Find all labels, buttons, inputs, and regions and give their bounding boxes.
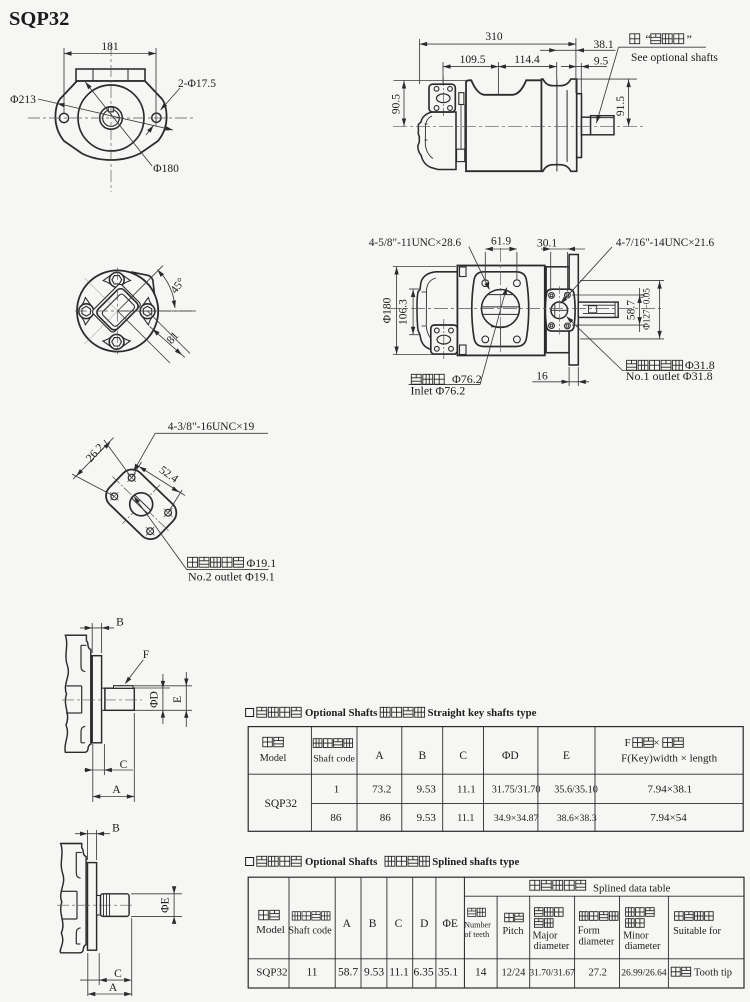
svg-text:310: 310	[485, 31, 503, 43]
svg-text:Inlet Φ76.2: Inlet Φ76.2	[411, 384, 466, 398]
svg-text:35.6/35.10: 35.6/35.10	[554, 784, 598, 795]
svg-text:86: 86	[330, 812, 342, 824]
svg-text:7.94×38.1: 7.94×38.1	[647, 783, 692, 795]
svg-text:7.94×54: 7.94×54	[650, 812, 687, 824]
svg-text:E: E	[172, 696, 184, 703]
svg-text:C: C	[114, 968, 122, 980]
svg-text:Major: Major	[533, 931, 559, 942]
svg-text:11: 11	[306, 967, 317, 979]
svg-text:91.5: 91.5	[615, 96, 627, 116]
svg-text:11.1: 11.1	[457, 813, 474, 824]
svg-text:14: 14	[475, 967, 487, 979]
svg-text:A: A	[343, 918, 352, 930]
svg-text:11.1: 11.1	[457, 783, 476, 795]
svg-text:9.53: 9.53	[417, 812, 437, 824]
svg-text:A: A	[109, 982, 118, 994]
svg-text:A: A	[112, 784, 121, 796]
svg-text:12/24: 12/24	[501, 968, 526, 979]
svg-text:Φ213: Φ213	[10, 94, 36, 106]
svg-text:Number: Number	[464, 921, 491, 930]
svg-text:2-Φ17.5: 2-Φ17.5	[178, 78, 216, 90]
svg-text:No.1 outlet Φ31.8: No.1 outlet Φ31.8	[626, 369, 713, 383]
svg-text:4-7/16"-14UNC×21.6: 4-7/16"-14UNC×21.6	[616, 237, 715, 249]
svg-text:D: D	[420, 918, 428, 930]
svg-text:ΦD: ΦD	[149, 691, 161, 708]
svg-text:B: B	[369, 918, 377, 930]
svg-text:diameter: diameter	[534, 941, 570, 952]
svg-text:Φ180: Φ180	[153, 163, 179, 175]
svg-text:16: 16	[536, 371, 548, 383]
svg-text:61.9: 61.9	[491, 236, 511, 248]
svg-text:Φ180: Φ180	[381, 297, 393, 323]
svg-text:“: “	[646, 32, 651, 46]
svg-text:diameter: diameter	[625, 941, 661, 952]
svg-text:181: 181	[101, 41, 119, 53]
svg-text:C: C	[459, 750, 467, 762]
svg-text:C: C	[395, 918, 403, 930]
svg-text:26.99/26.64: 26.99/26.64	[621, 969, 667, 979]
svg-text:Φ19.1: Φ19.1	[247, 556, 277, 570]
svg-text:4-3/8"-16UNC×19: 4-3/8"-16UNC×19	[168, 421, 255, 433]
svg-text:F: F	[143, 649, 149, 661]
svg-text:”: ”	[687, 32, 692, 46]
svg-text:ΦE: ΦE	[160, 897, 172, 912]
svg-text:Φ127−0.05: Φ127−0.05	[641, 288, 651, 330]
svg-text:B: B	[112, 823, 120, 835]
svg-text:4-5/8"-11UNC×28.6: 4-5/8"-11UNC×28.6	[369, 237, 462, 249]
svg-text:35.1: 35.1	[438, 967, 458, 979]
svg-text:90.5: 90.5	[391, 94, 403, 114]
svg-text:Model: Model	[260, 753, 287, 764]
svg-text:Optional Shafts: Optional Shafts	[305, 856, 377, 868]
svg-text:Shaft code: Shaft code	[288, 926, 332, 937]
svg-text:9.53: 9.53	[417, 783, 437, 795]
svg-text:114.4: 114.4	[514, 54, 540, 66]
svg-text:9.53: 9.53	[364, 967, 384, 979]
svg-text:B: B	[418, 750, 426, 762]
svg-text:6.35: 6.35	[414, 967, 434, 979]
svg-text:E: E	[563, 750, 570, 762]
svg-text:F(Key)width × length: F(Key)width × length	[621, 753, 718, 765]
svg-text:Splined shafts type: Splined shafts type	[432, 856, 519, 868]
svg-text:106.3: 106.3	[397, 299, 409, 325]
svg-text:1: 1	[334, 783, 340, 795]
svg-text:No.2 outlet Φ19.1: No.2 outlet Φ19.1	[188, 570, 275, 584]
svg-text:Straight key shafts type: Straight key shafts type	[428, 707, 537, 719]
svg-text:Minor: Minor	[623, 931, 649, 942]
svg-text:58.7: 58.7	[338, 967, 358, 979]
svg-text:ΦD: ΦD	[502, 750, 519, 762]
svg-text:F: F	[624, 737, 630, 749]
svg-text:34.9×34.87: 34.9×34.87	[494, 813, 539, 824]
svg-text:58.7: 58.7	[626, 300, 638, 320]
svg-text:Shaft code: Shaft code	[313, 754, 355, 765]
svg-text:diameter: diameter	[579, 937, 615, 948]
svg-text:Tooth tip: Tooth tip	[694, 968, 732, 979]
svg-text:SQP32: SQP32	[264, 798, 297, 810]
svg-text:Suitable for: Suitable for	[673, 926, 721, 937]
svg-text:ΦE: ΦE	[442, 918, 457, 930]
svg-text:109.5: 109.5	[460, 54, 486, 66]
svg-text:0: 0	[638, 294, 647, 298]
svg-text:73.2: 73.2	[372, 783, 391, 795]
svg-text:of teeth: of teeth	[464, 930, 489, 939]
svg-text:A: A	[375, 750, 384, 762]
svg-text:SQP32: SQP32	[256, 967, 287, 979]
svg-text:B: B	[116, 617, 124, 629]
svg-text:×: ×	[653, 737, 659, 749]
svg-text:9.5: 9.5	[594, 56, 609, 68]
svg-text:Model: Model	[256, 924, 285, 936]
svg-text:Optional Shafts: Optional Shafts	[305, 707, 377, 719]
svg-text:Splined data table: Splined data table	[593, 883, 671, 895]
svg-text:30.1: 30.1	[537, 238, 557, 250]
svg-text:See optional shafts: See optional shafts	[631, 52, 718, 64]
svg-text:Pitch: Pitch	[503, 926, 524, 937]
svg-text:SQP32: SQP32	[9, 8, 69, 30]
svg-text:Form: Form	[578, 926, 600, 937]
svg-text:11.1: 11.1	[389, 967, 409, 979]
svg-text:31.75/31.70: 31.75/31.70	[492, 784, 541, 795]
svg-text:27.2: 27.2	[589, 968, 607, 979]
svg-text:38.6×38.3: 38.6×38.3	[557, 813, 597, 824]
svg-text:31.70/31.67: 31.70/31.67	[529, 969, 575, 979]
svg-text:C: C	[120, 759, 128, 771]
svg-text:86: 86	[380, 812, 392, 824]
svg-text:38.1: 38.1	[593, 39, 613, 51]
